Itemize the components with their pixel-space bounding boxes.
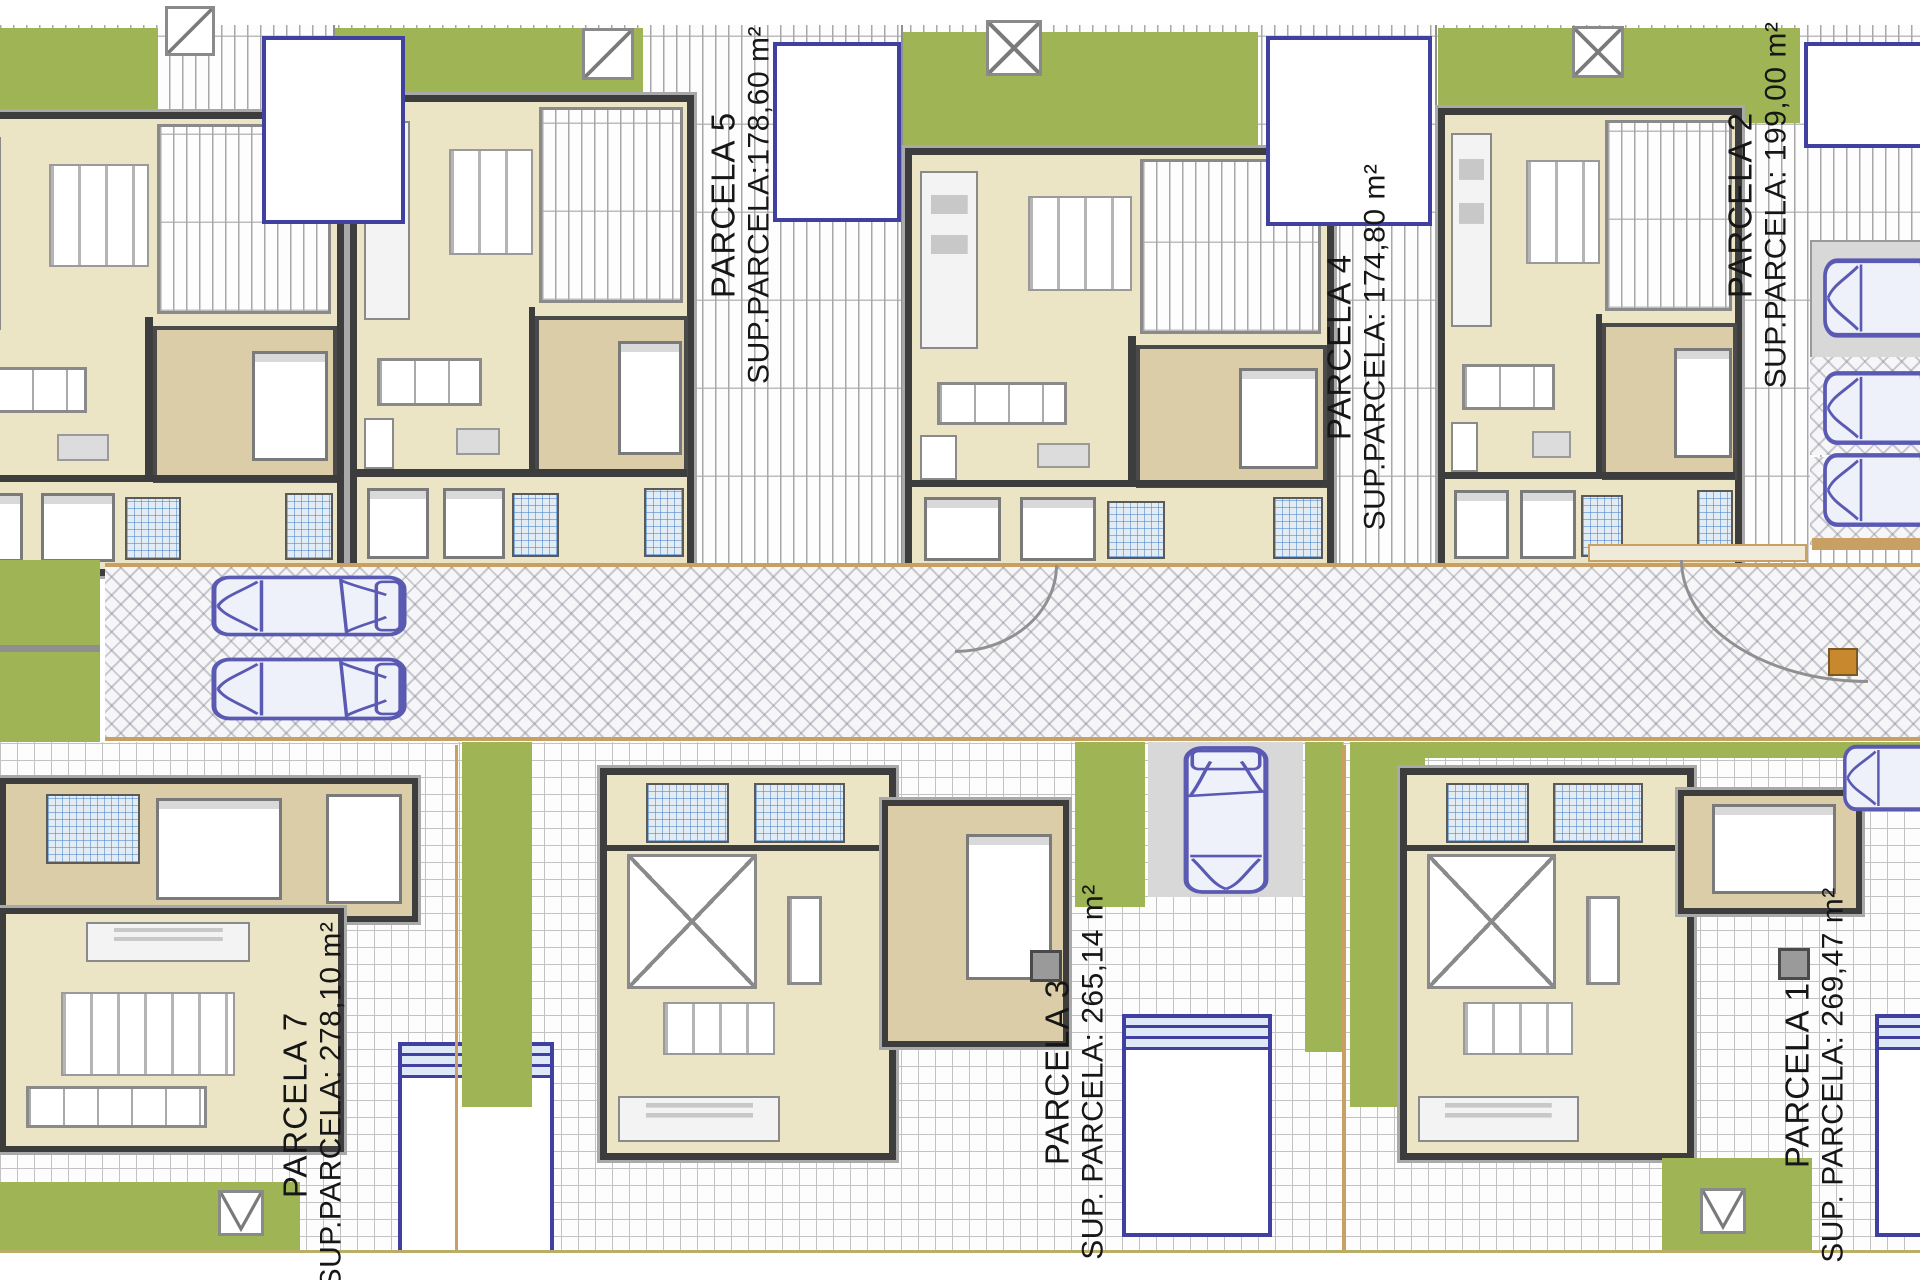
parcel-name: PARCELA 7	[278, 922, 315, 1280]
gate-post	[1828, 648, 1858, 676]
bed	[443, 488, 505, 559]
stair-void	[1427, 854, 1556, 989]
bed	[1454, 490, 1509, 559]
interior-wall	[0, 475, 337, 482]
bathroom-tiles	[1107, 501, 1165, 559]
dining-table	[1463, 1002, 1573, 1055]
tv-unit	[1037, 443, 1091, 468]
wardrobe	[326, 794, 402, 904]
parcel-5-label: PARCELA 5 SUP.PARCELA:178,60 m²	[706, 26, 777, 384]
bathroom-tiles	[754, 783, 845, 844]
interior-wall	[1128, 336, 1136, 480]
car-icon	[1842, 742, 1920, 814]
lawn	[0, 28, 158, 120]
bed	[0, 493, 23, 562]
pool	[773, 42, 901, 222]
bathroom-tiles	[46, 794, 140, 864]
skylight-icon	[582, 28, 634, 80]
entry-porch	[1605, 120, 1733, 311]
interior-wall	[1445, 472, 1735, 479]
bed	[41, 493, 115, 562]
car-icon	[1822, 368, 1920, 448]
lawn	[0, 652, 100, 742]
bed	[1020, 497, 1097, 561]
bed	[367, 488, 429, 559]
bed	[156, 798, 282, 900]
house-parcela-2	[1438, 108, 1742, 574]
lawn	[1305, 742, 1343, 1052]
lawn	[0, 560, 100, 648]
entry-porch	[539, 107, 684, 304]
car-icon	[1180, 745, 1272, 895]
fence	[1812, 538, 1920, 550]
parcel-name: PARCELA 5	[706, 26, 743, 384]
parcel-area: SUP. PARCELA: 265,14 m²	[1077, 884, 1111, 1260]
kitchen-counter	[86, 922, 250, 962]
sofa	[1586, 896, 1620, 985]
interior-wall	[607, 845, 889, 851]
car-icon	[210, 655, 408, 723]
parcel-area: SUP.PARCELA: 199,00 m²	[1760, 22, 1794, 389]
bathroom-tiles	[512, 493, 559, 557]
bed	[924, 497, 1001, 561]
house-parcela-1	[1400, 768, 1694, 1160]
bedroom-main	[1602, 323, 1738, 480]
parcel-boundary	[901, 25, 903, 565]
stair-void	[627, 854, 757, 989]
tv-unit	[456, 428, 500, 455]
armchair	[364, 418, 394, 469]
parcel-name: PARCELA 4	[1322, 164, 1359, 531]
parcel-name: PARCELA 1	[1780, 887, 1817, 1263]
drain-icon	[218, 1190, 264, 1236]
house-parcela-3	[600, 768, 896, 1160]
parcel-4-label: PARCELA 4 SUP.PARCELA: 174,80 m²	[1322, 164, 1393, 531]
lawn	[903, 32, 1258, 150]
bed	[1712, 804, 1836, 894]
parcel-area: SUP. PARCELA: 269,47 m²	[1817, 887, 1851, 1263]
car-icon	[1822, 255, 1920, 341]
dining-table	[663, 1002, 774, 1055]
sofa	[0, 367, 87, 414]
interior-wall	[529, 307, 536, 470]
tv-unit	[57, 434, 109, 461]
tv-unit	[1532, 431, 1571, 458]
house-parcela-7-bedroom-wing	[0, 778, 418, 922]
car-icon	[210, 573, 408, 639]
dining-table	[449, 149, 532, 255]
parcel-1-label: PARCELA 1 SUP. PARCELA: 269,47 m²	[1780, 887, 1851, 1263]
parcel-boundary	[455, 745, 458, 1250]
bathroom-tiles	[1273, 497, 1323, 559]
bedroom-main	[1136, 345, 1327, 489]
bed	[1239, 368, 1318, 469]
bed	[1520, 490, 1575, 559]
kitchen-counter	[1451, 133, 1493, 327]
bathroom-tiles	[1446, 783, 1528, 844]
sofa	[377, 358, 482, 406]
car-icon	[1822, 450, 1920, 530]
bed	[618, 341, 682, 454]
kitchen-counter	[0, 137, 1, 330]
parcel-3-label: PARCELA 3 SUP. PARCELA: 265,14 m²	[1040, 884, 1111, 1260]
bathroom-tiles	[644, 488, 684, 557]
dining-table	[49, 164, 149, 267]
sofa	[787, 896, 821, 985]
parcel-2-label: PARCELA 2 SUP.PARCELA: 199,00 m²	[1723, 22, 1794, 389]
armchair	[920, 435, 957, 480]
parcel-name: PARCELA 3	[1040, 884, 1077, 1260]
pool	[1122, 1014, 1272, 1237]
bedroom-main	[535, 316, 688, 477]
kitchen-counter	[1418, 1096, 1579, 1142]
skylight-icon	[1572, 26, 1624, 78]
pool	[262, 36, 405, 224]
armchair	[1451, 422, 1478, 471]
lawn	[462, 742, 532, 1107]
interior-wall	[1407, 845, 1687, 851]
pool	[1804, 42, 1920, 148]
bathroom-tiles	[285, 493, 333, 560]
parcel-boundary	[1435, 25, 1437, 565]
skylight-icon	[986, 20, 1042, 76]
dining-table	[1028, 196, 1132, 291]
sofa	[937, 382, 1068, 425]
interior-wall	[145, 317, 153, 475]
site-plan-canvas: PARCELA 5 SUP.PARCELA:178,60 m² PARCELA …	[0, 0, 1920, 1280]
parcel-area: SUP.PARCELA: 174,80 m²	[1359, 164, 1393, 531]
parcel-area: SUP.PARCELA: 278,10 m²	[315, 922, 349, 1280]
dining-table	[1526, 160, 1600, 263]
kitchen-counter	[618, 1096, 780, 1142]
interior-wall	[912, 480, 1327, 487]
parcel-boundary	[1342, 745, 1346, 1250]
skylight-icon	[165, 6, 215, 56]
sofa	[26, 1086, 207, 1128]
lawn	[1075, 742, 1145, 907]
bedroom-main	[153, 326, 337, 483]
bathroom-tiles	[125, 497, 181, 560]
bathroom-tiles	[1553, 783, 1644, 844]
bathroom-tiles	[646, 783, 729, 844]
dining-table	[61, 992, 235, 1076]
sofa	[1462, 364, 1555, 411]
parcel-name: PARCELA 2	[1723, 22, 1760, 389]
drain-icon	[1700, 1188, 1746, 1234]
interior-wall	[357, 469, 687, 476]
parcel-7-label: PARCELA 7 SUP.PARCELA: 278,10 m²	[278, 922, 349, 1280]
kitchen-counter	[920, 171, 978, 348]
pool	[1875, 1014, 1920, 1237]
parcel-area: SUP.PARCELA:178,60 m²	[743, 26, 777, 384]
bed	[252, 351, 328, 461]
